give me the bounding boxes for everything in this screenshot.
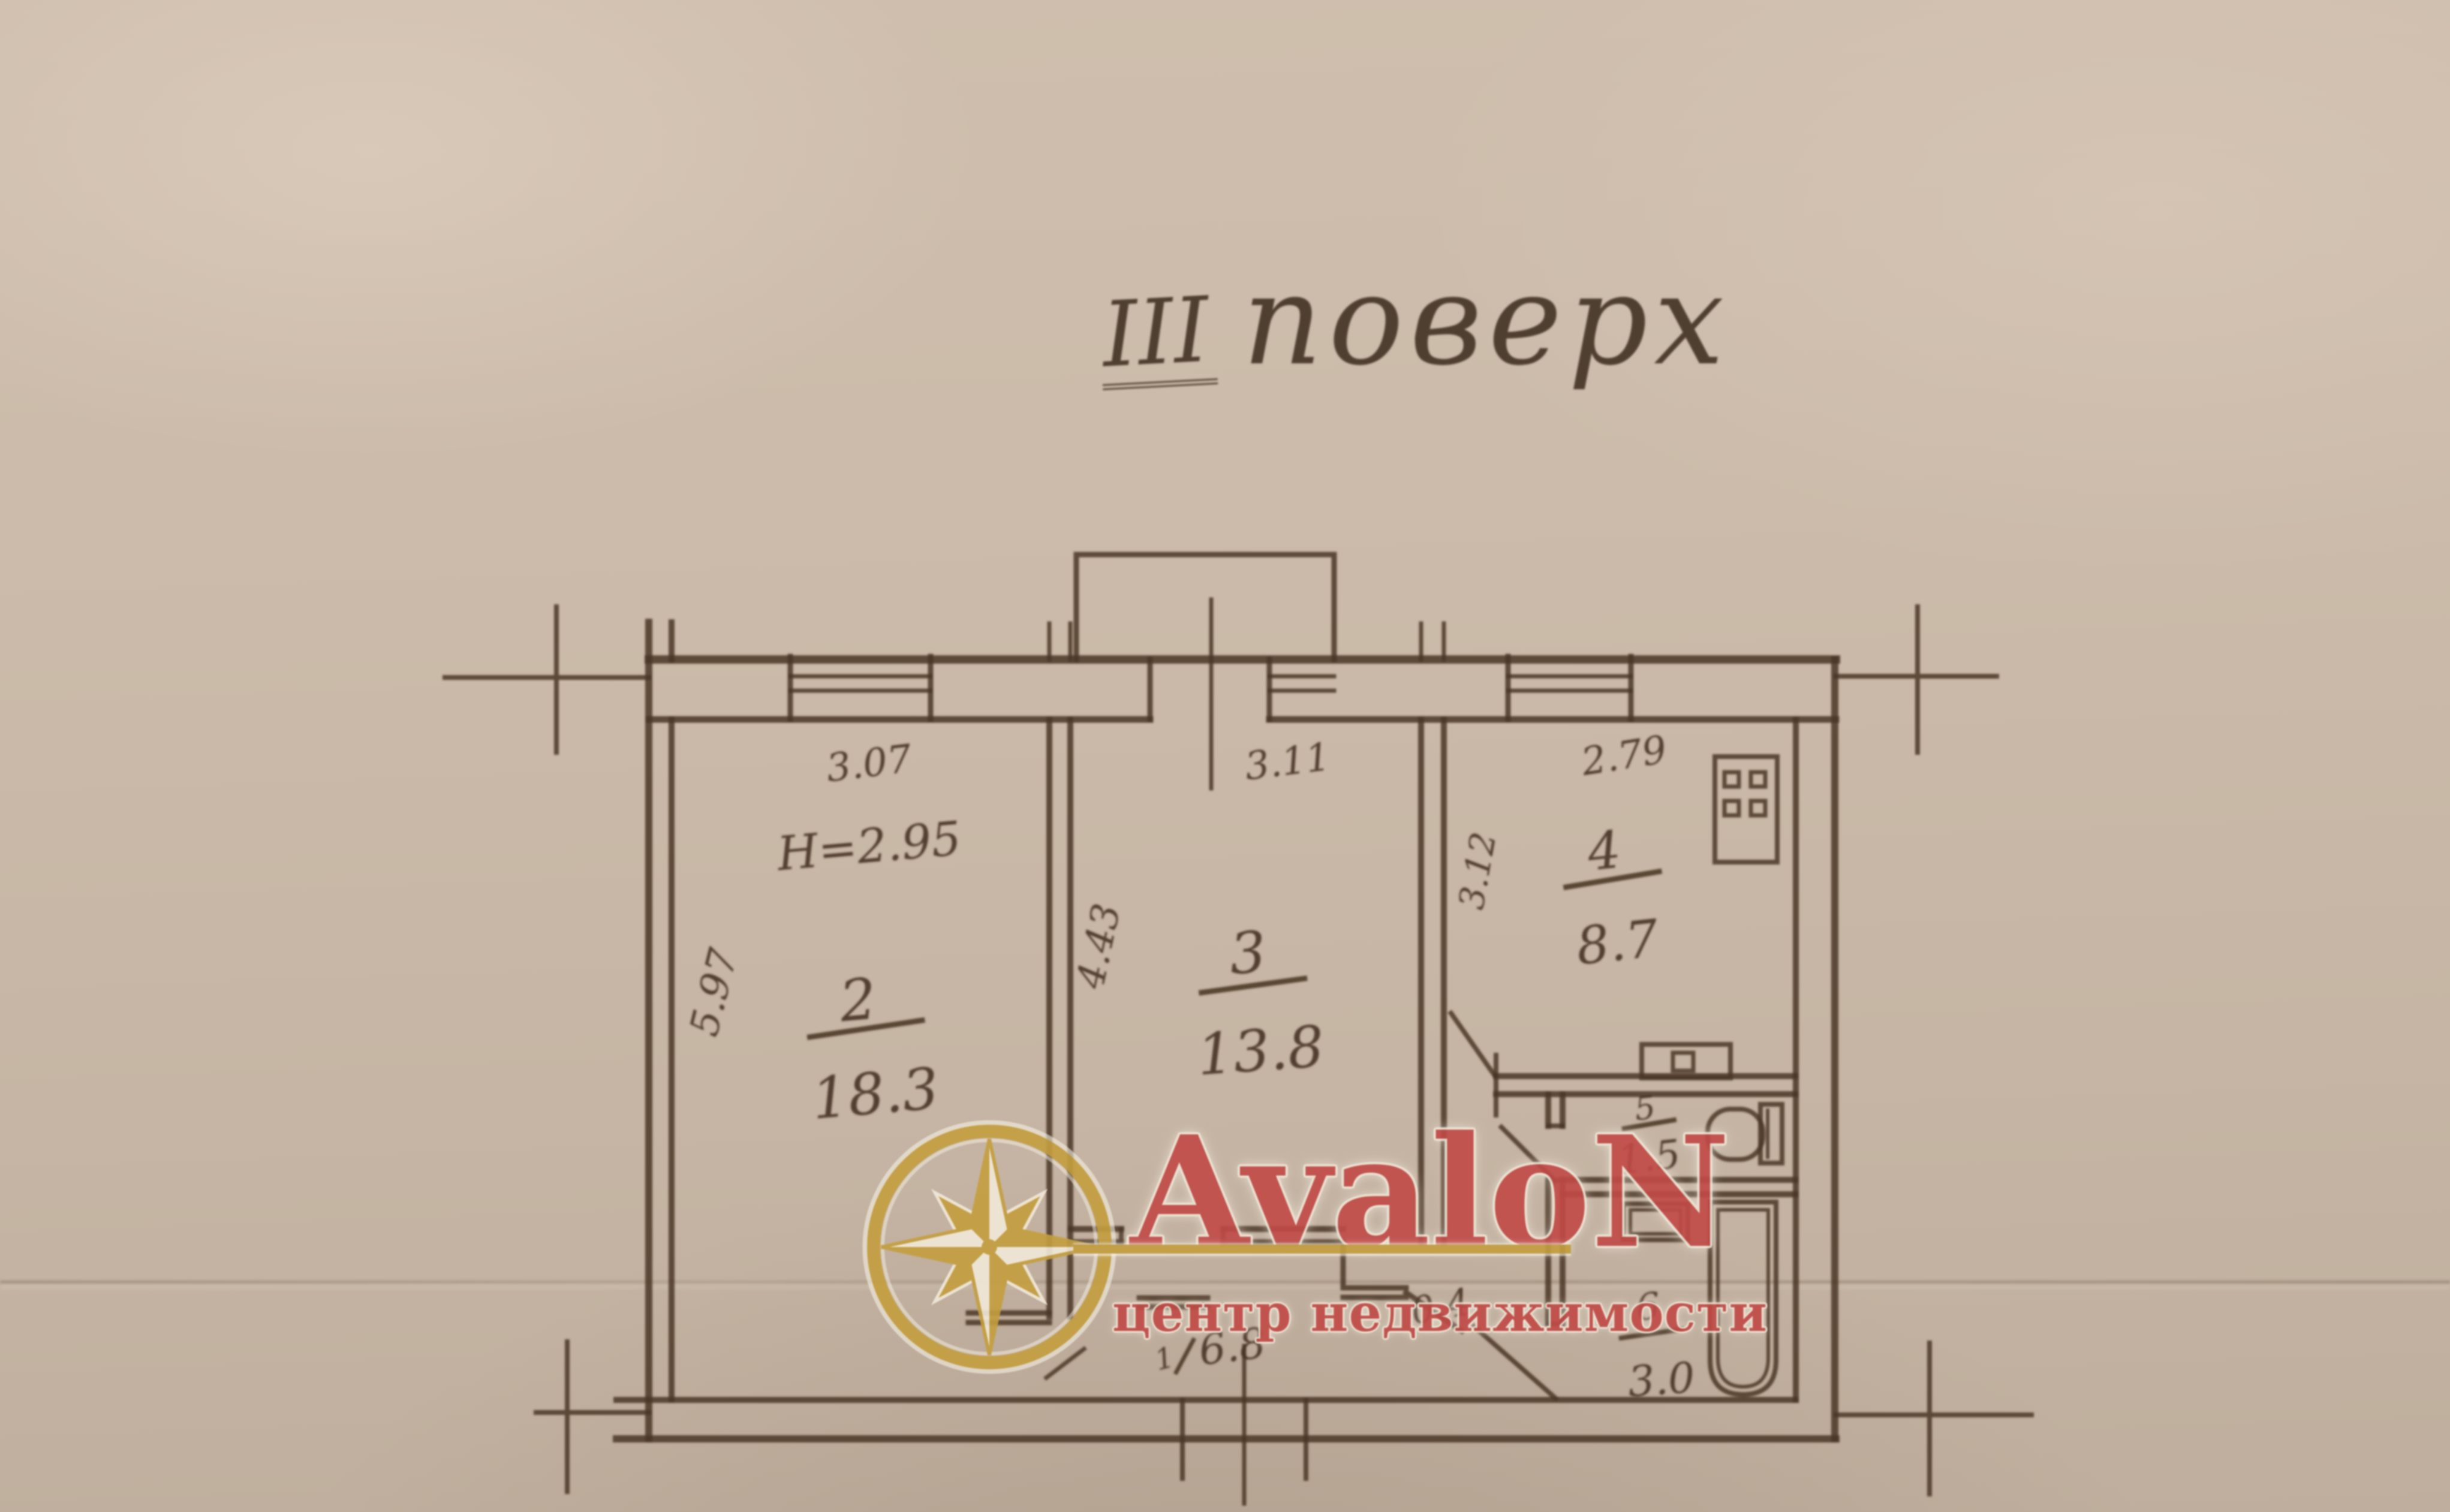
balcony-outline: [1076, 555, 1334, 659]
hallway-label: 1 6.8: [1152, 1318, 1269, 1378]
hallway-number: 1: [1152, 1341, 1178, 1378]
dim-kitchen-width: 2.79: [1578, 728, 1670, 785]
bathtub-icon: [1710, 1202, 1776, 1394]
dim-room3-depth: 4.43: [1069, 900, 1130, 993]
niche-area: 0.4: [1407, 1279, 1473, 1333]
room-4-number: 4: [1584, 820, 1624, 882]
room-2-area: 18.3: [809, 1056, 941, 1133]
dimension-labels: 3.07 H=2.95 5.97 3.11 4.43 2.79 3.12: [681, 728, 1670, 1041]
dim-kitchen-depth: 3.12: [1450, 829, 1504, 912]
room-4-area: 8.7: [1573, 909, 1662, 977]
room-2-number: 2: [836, 966, 879, 1035]
fraction-slash: [1175, 1338, 1194, 1374]
dim-room2-width: 3.07: [824, 737, 914, 791]
hallway-area: 6.8: [1196, 1318, 1268, 1375]
stove-icon: [1715, 757, 1777, 862]
room-4-label: 4 8.7: [1557, 816, 1672, 978]
washbasin-icon: [1623, 1204, 1688, 1240]
dim-ceiling-height: H=2.95: [774, 812, 964, 882]
room-6-label: 6 3.0: [1615, 1282, 1696, 1407]
room-6-area: 3.0: [1626, 1353, 1696, 1407]
fraction-bar: [1618, 1329, 1684, 1338]
toilet-icon: [1708, 1104, 1782, 1163]
room-3-area: 13.8: [1195, 1014, 1326, 1088]
room-5-label: 5 1.5: [1611, 1086, 1683, 1183]
scanned-floor-plan-photo: IIIповерх: [0, 0, 2450, 1512]
kitchen-sink-icon: [1642, 1044, 1730, 1078]
dim-room2-depth: 5.97: [681, 944, 747, 1041]
room-3-label: 3 13.8: [1188, 915, 1326, 1088]
room-5-area: 1.5: [1615, 1131, 1683, 1183]
interior-walls: [1049, 624, 1796, 1331]
room-2-label: 2 18.3: [801, 962, 941, 1133]
room-3-number: 3: [1227, 919, 1268, 987]
floor-plan-drawing: 3.07 H=2.95 5.97 3.11 4.43 2.79 3.12 2 1…: [0, 0, 2450, 1512]
room-6-number: 6: [1635, 1284, 1661, 1329]
dim-room3-width: 3.11: [1242, 735, 1332, 790]
